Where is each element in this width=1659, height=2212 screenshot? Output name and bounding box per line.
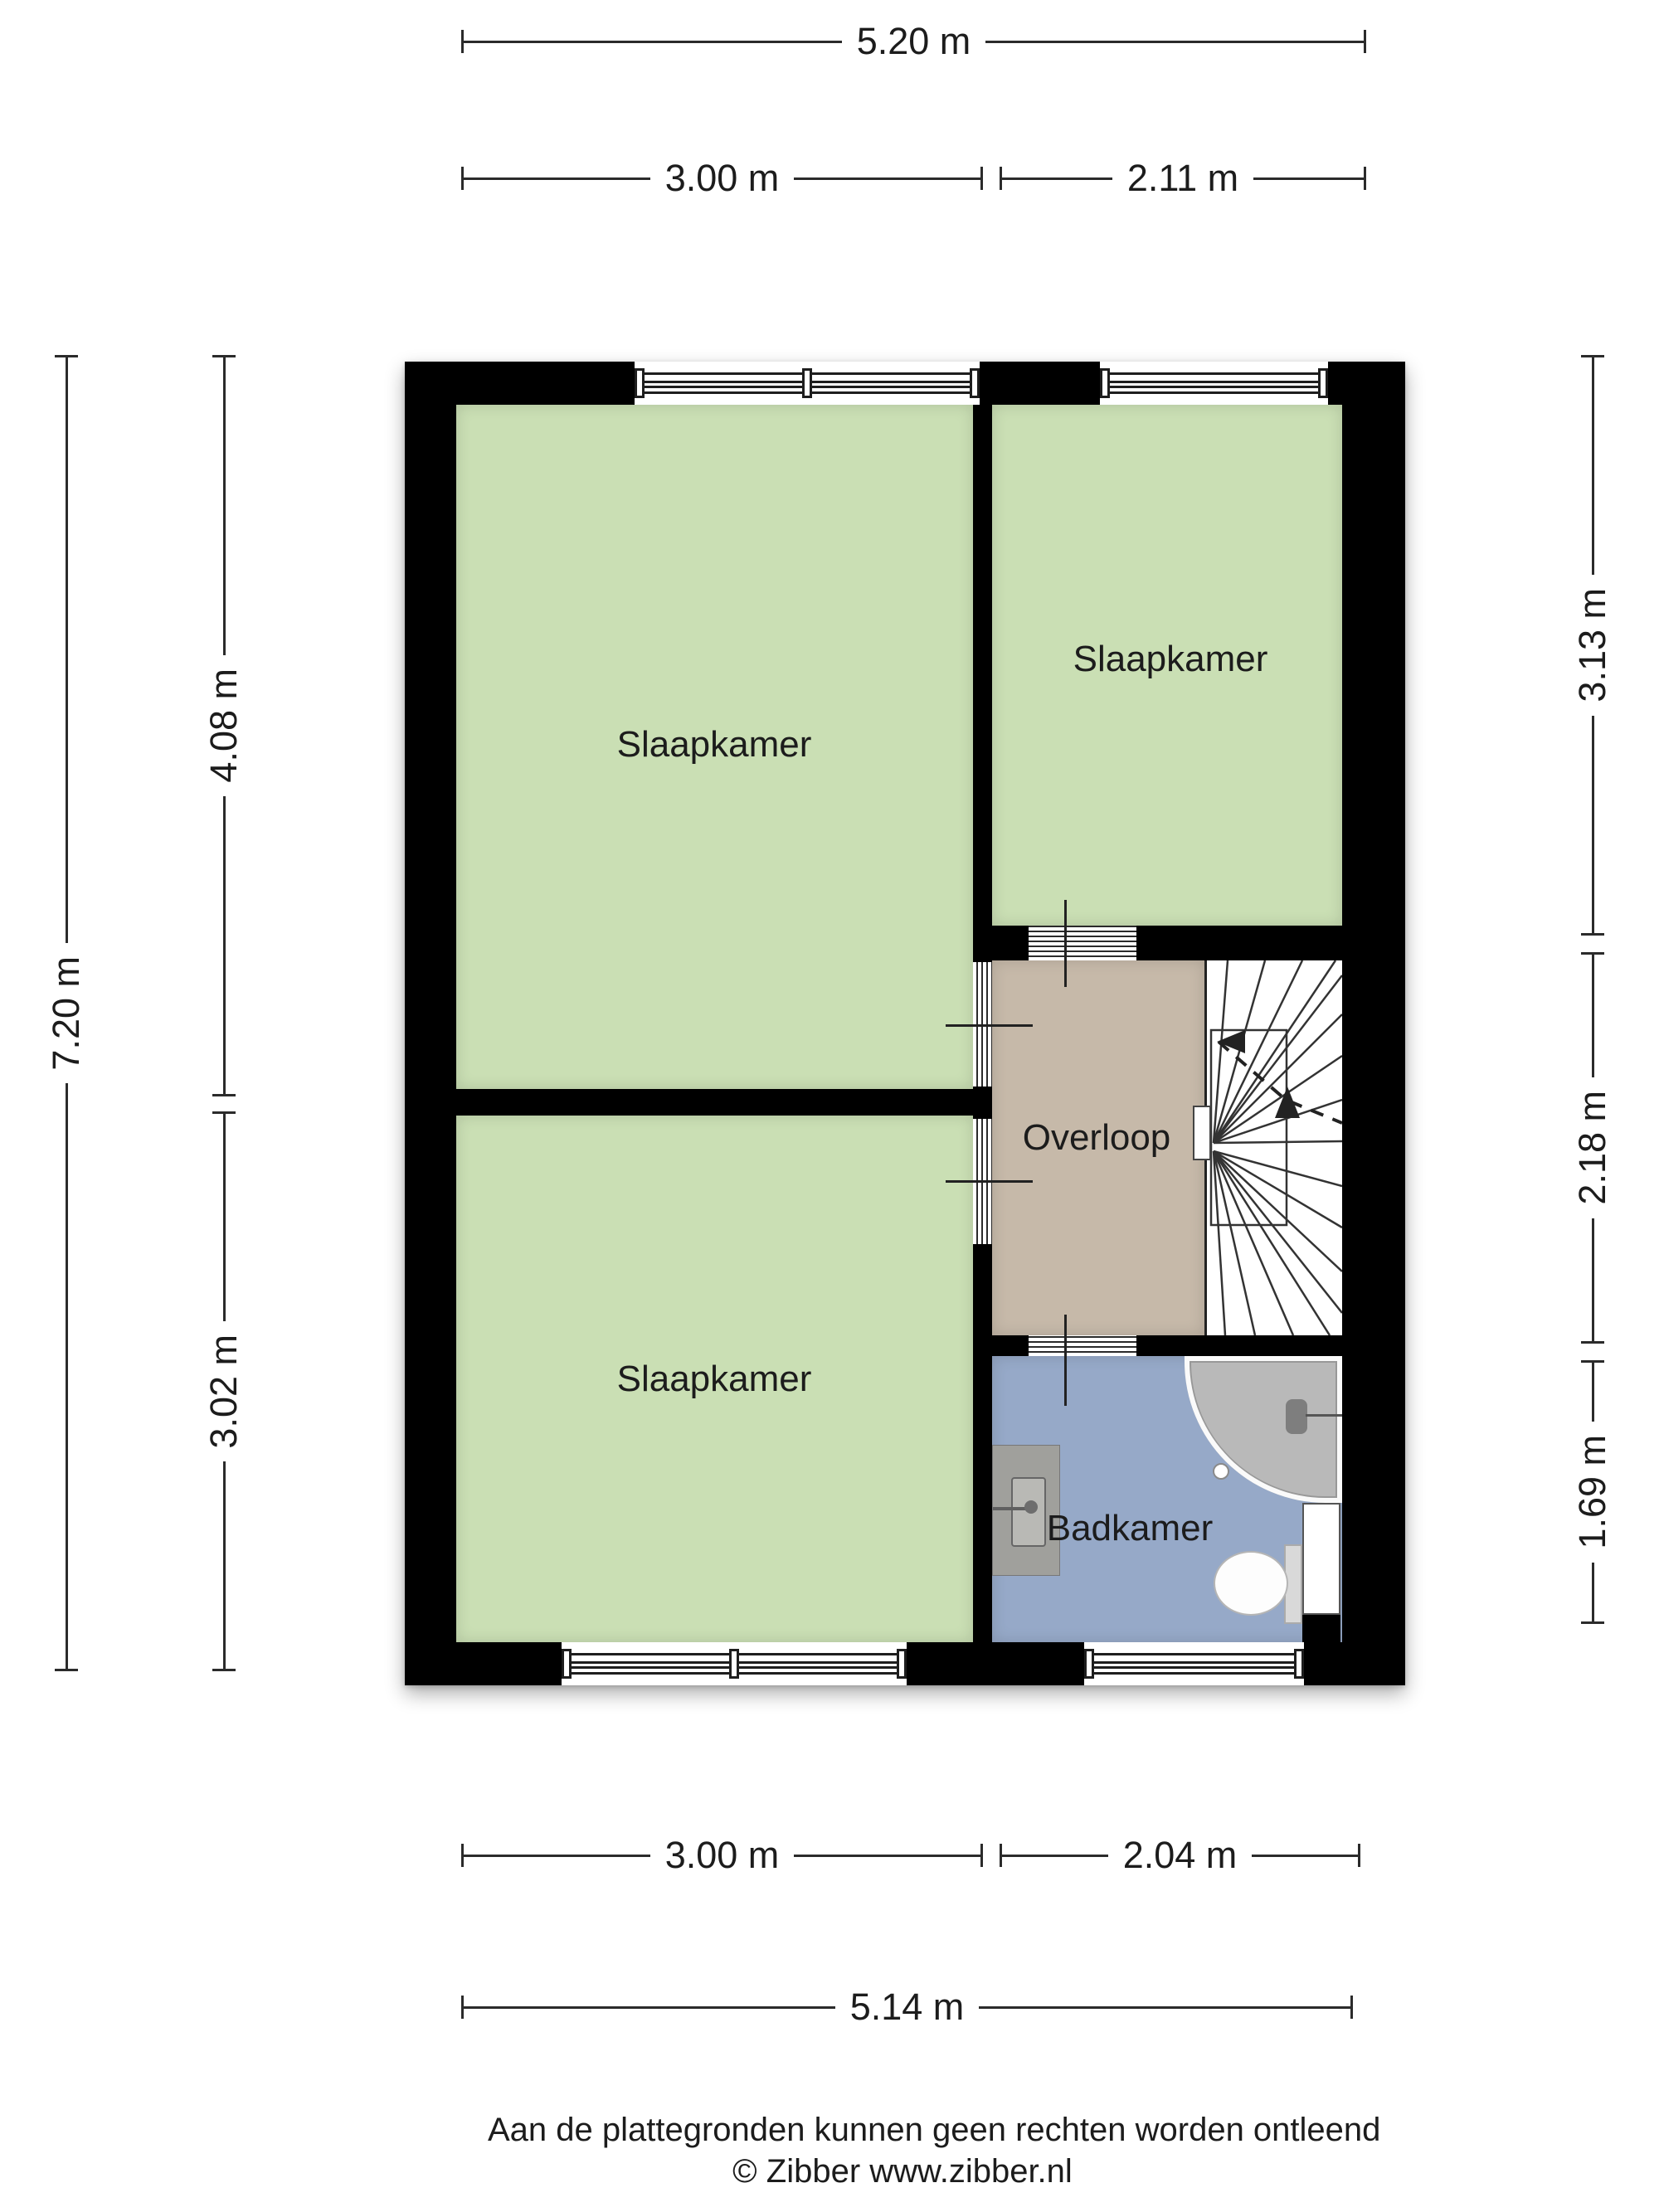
wall-bottom-left-block	[405, 1642, 562, 1685]
wall-interior-vertical-bath	[973, 1356, 992, 1642]
dimension-line	[1592, 1218, 1594, 1341]
dimension-line	[1002, 177, 1112, 180]
wall-bottom-pier	[907, 1642, 1084, 1685]
window-post	[970, 368, 980, 398]
wall-below-bedroom-tr-left	[973, 926, 1029, 960]
wall-interior-vertical-lower	[973, 1244, 992, 1335]
dimension-label: 5.14 m	[835, 1986, 980, 2029]
wall-top-pier	[980, 362, 1100, 405]
dimension-label: 2.04 m	[1108, 1834, 1253, 1877]
wall-below-bedroom-tr-right	[1136, 926, 1342, 960]
dimension-line	[794, 1855, 980, 1857]
window-post	[1318, 368, 1328, 398]
window-bottom-left	[562, 1642, 907, 1685]
dimension-line	[66, 357, 68, 943]
dimension-line	[223, 1461, 226, 1669]
room-label-bathroom: Badkamer	[1047, 1508, 1214, 1549]
wall-interior-vertical-upper	[973, 405, 992, 962]
dimension-line	[985, 41, 1364, 43]
dimension-left-lower: 3.02 m	[206, 1111, 242, 1671]
window-bottom-bathroom	[1084, 1642, 1304, 1685]
dimension-line	[464, 177, 650, 180]
bathroom-door-leaf	[1302, 1503, 1340, 1615]
dimension-line	[464, 1855, 650, 1857]
window-glass	[1086, 1653, 1302, 1675]
door-swing-line	[1064, 1315, 1067, 1406]
wall-right	[1342, 362, 1405, 1685]
dimension-line	[1592, 357, 1594, 575]
window-post	[897, 1649, 907, 1679]
window-post	[802, 368, 812, 398]
dimension-line	[1592, 1563, 1594, 1621]
dimension-label: 3.02 m	[202, 1321, 246, 1462]
dimension-bottom-left: 3.00 m	[461, 1837, 983, 1874]
staircase-treads	[1207, 960, 1342, 1335]
dimension-tick	[1581, 1341, 1604, 1344]
dimension-line	[1592, 1363, 1594, 1422]
dimension-line	[464, 2006, 835, 2009]
dimension-label: 2.18 m	[1571, 1077, 1614, 1218]
dimension-right-upper: 3.13 m	[1574, 355, 1611, 936]
dimension-label: 3.00 m	[650, 1834, 795, 1877]
window-top-left	[635, 362, 980, 405]
wall-landing-bathroom-right	[1136, 1335, 1342, 1356]
room-label-bedroom-top-right: Slaapkamer	[1073, 639, 1268, 680]
dimension-top-left: 3.00 m	[461, 160, 983, 197]
wall-between-left-bedrooms	[456, 1089, 992, 1116]
dimension-tick	[1581, 933, 1604, 936]
wall-bottom-right-block	[1304, 1642, 1405, 1685]
window-post	[1294, 1649, 1304, 1679]
window-top-right	[1100, 362, 1328, 405]
dimension-tick	[55, 1669, 78, 1671]
window-post	[729, 1649, 739, 1679]
window-glass	[1102, 372, 1326, 394]
dimension-label: 3.13 m	[1571, 575, 1614, 716]
floor-plan: Slaapkamer Slaapkamer Slaapkamer Overloo…	[405, 362, 1405, 1685]
dimension-line	[1253, 177, 1364, 180]
room-label-landing: Overloop	[1023, 1117, 1171, 1159]
dimension-left-upper: 4.08 m	[206, 355, 242, 1096]
wall-top-right-block	[1328, 362, 1405, 405]
floorplan-page: 5.20 m 3.00 m 2.11 m 7.20 m 4.08 m 3.02 …	[0, 0, 1659, 2212]
door-swing-line	[946, 1024, 1033, 1027]
dimension-line	[223, 796, 226, 1094]
dimension-line	[223, 1114, 226, 1321]
dimension-label: 2.11 m	[1112, 157, 1253, 200]
window-post	[635, 368, 645, 398]
door-swing-line	[1064, 900, 1067, 987]
dimension-label: 5.20 m	[842, 20, 986, 63]
dimension-label: 7.20 m	[45, 943, 88, 1084]
wall-left	[405, 362, 456, 1685]
staircase	[1204, 960, 1342, 1335]
dimension-tick	[980, 1844, 983, 1867]
dimension-label: 3.00 m	[650, 157, 795, 200]
dimension-tick	[212, 1669, 236, 1671]
dimension-label: 4.08 m	[202, 655, 246, 796]
dimension-top-total: 5.20 m	[461, 23, 1366, 60]
wall-top-left-block	[405, 362, 635, 405]
toilet-bowl	[1214, 1551, 1288, 1616]
window-post	[1084, 1649, 1094, 1679]
dimension-top-right: 2.11 m	[1000, 160, 1366, 197]
shower-head-icon	[1286, 1399, 1307, 1434]
dimension-bottom-total: 5.14 m	[461, 1989, 1353, 2025]
door-bedroom-top-right	[1029, 926, 1136, 960]
shower-arm	[1306, 1414, 1342, 1417]
window-post	[562, 1649, 572, 1679]
dimension-right-lower: 1.69 m	[1574, 1360, 1611, 1624]
dimension-line	[979, 2006, 1350, 2009]
dimension-line	[1252, 1855, 1358, 1857]
dimension-line	[794, 177, 980, 180]
dimension-tick	[1358, 1844, 1360, 1867]
footer-copyright: © Zibber www.zibber.nl	[488, 2153, 1317, 2190]
dimension-label: 1.69 m	[1571, 1422, 1614, 1563]
dimension-tick	[212, 1094, 236, 1096]
wall-landing-bathroom-left	[973, 1335, 1029, 1356]
door-bathroom	[1029, 1335, 1136, 1356]
dimension-right-middle: 2.18 m	[1574, 952, 1611, 1344]
stair-newel	[1193, 1106, 1211, 1160]
door-swing-line	[946, 1180, 1033, 1183]
dimension-line	[223, 357, 226, 655]
room-label-bedroom-top-left: Slaapkamer	[617, 724, 812, 766]
dimension-tick	[1350, 1996, 1353, 2019]
dimension-tick	[1581, 1621, 1604, 1624]
dimension-line	[1002, 1855, 1108, 1857]
sink-faucet-knob	[1024, 1500, 1038, 1514]
footer-disclaimer: Aan de plattegronden kunnen geen rechten…	[488, 2112, 1317, 2149]
dimension-tick	[980, 167, 983, 190]
dimension-line	[66, 1083, 68, 1669]
wall-bathroom-stub	[1302, 1615, 1340, 1642]
dimension-line	[1592, 716, 1594, 933]
dimension-tick	[1364, 167, 1366, 190]
dimension-line	[464, 41, 842, 43]
shower-drain	[1213, 1463, 1229, 1480]
dimension-left-total: 7.20 m	[48, 355, 85, 1671]
dimension-line	[1592, 955, 1594, 1077]
dimension-tick	[1364, 30, 1366, 53]
room-label-bedroom-bottom-left: Slaapkamer	[617, 1359, 812, 1400]
window-post	[1100, 368, 1110, 398]
dimension-bottom-right: 2.04 m	[1000, 1837, 1360, 1874]
